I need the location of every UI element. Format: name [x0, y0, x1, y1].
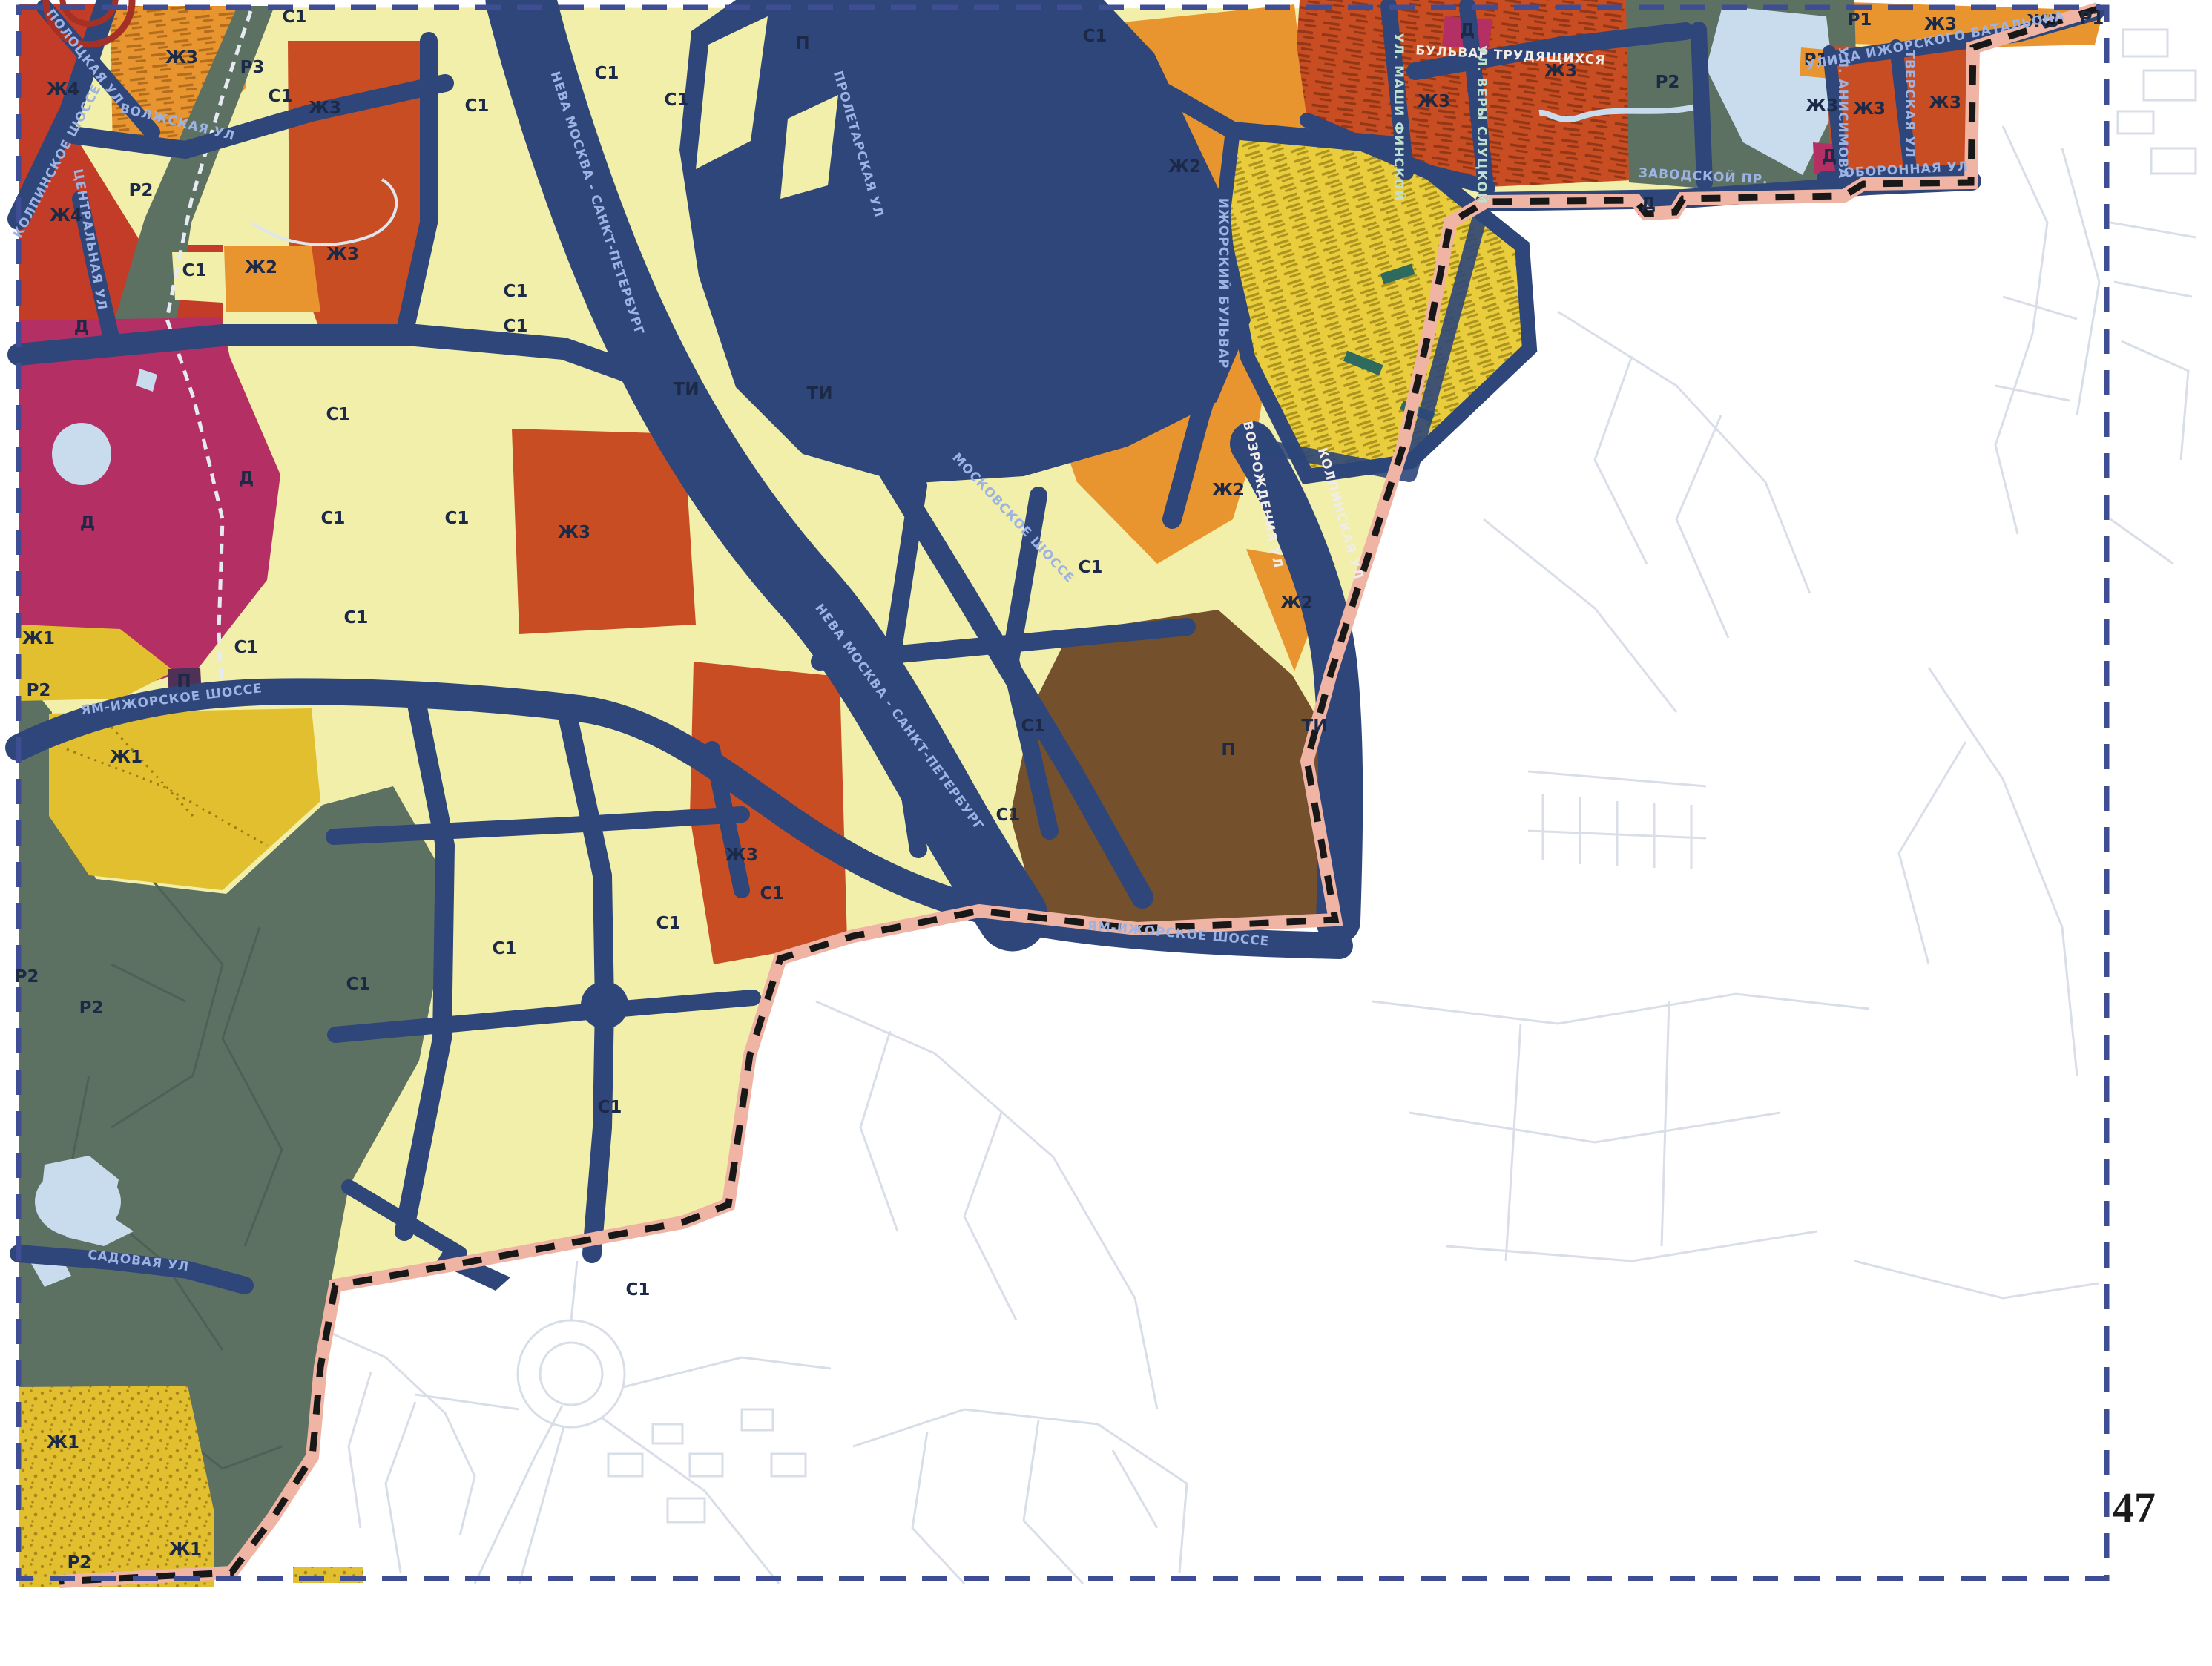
- zone-label-С1: С1: [1079, 558, 1103, 577]
- zone-label-С1: С1: [504, 317, 528, 336]
- zone-label-С1: С1: [504, 282, 528, 301]
- zone-label-С1: С1: [760, 884, 785, 903]
- zone-label-Ж2: Ж2: [1168, 157, 1201, 177]
- zone-label-Д: Д: [1822, 147, 1837, 166]
- zone-label-ТИ: ТИ: [674, 380, 700, 399]
- zone-label-С1: С1: [656, 914, 681, 933]
- zone-label-Р2: Р2: [15, 967, 39, 987]
- zone-label-П: П: [795, 34, 809, 53]
- zone-label-Ж3: Ж3: [1418, 92, 1450, 111]
- street-label: ТВЕРСКАЯ УЛ: [1902, 50, 1917, 157]
- zone-label-Р1: Р1: [2080, 9, 2104, 28]
- zone-label-С1: С1: [445, 509, 470, 528]
- zone-label-ТИ: ТИ: [1302, 717, 1328, 736]
- zone-label-ТИ: ТИ: [807, 384, 833, 404]
- zone-label-Р2: Р2: [27, 681, 51, 700]
- page-number: 47: [2113, 1484, 2156, 1532]
- zone-label-Д: Д: [1460, 21, 1475, 40]
- zone-label-Ж3: Ж3: [558, 523, 590, 542]
- zone-label-С1: С1: [996, 806, 1021, 825]
- zone-label-Ж3: Ж3: [725, 846, 758, 865]
- zoning-map-canvas[interactable]: Ж4Ж4Ж3Ж3Ж3Ж3Ж3Ж3Ж3Ж3Ж3Ж3Ж3Ж3Ж2Ж2Ж2Ж2Ж1Ж1…: [0, 0, 2212, 1666]
- zone-label-С1: С1: [465, 96, 490, 116]
- zone-label-Ж2: Ж2: [1280, 593, 1313, 613]
- zone-label-Д: Д: [239, 469, 254, 488]
- zone-label-П: П: [177, 672, 191, 691]
- zone-label-С1: С1: [595, 64, 619, 83]
- street-label: ИЖОРСКИЙ БУЛЬВАР: [1216, 198, 1232, 369]
- zone-label-Ж1: Ж1: [169, 1540, 202, 1559]
- zone-label-Р2: Р2: [68, 1553, 92, 1573]
- zone-label-Ж4: Ж4: [47, 80, 79, 99]
- zone-label-Ж1: Ж1: [47, 1433, 79, 1452]
- street-label: УЛ. ВЕРЫ СЛУЦКОЙ: [1474, 45, 1490, 204]
- zone-label-С1: С1: [182, 261, 207, 280]
- zone-label-С1: С1: [269, 87, 293, 106]
- map-sheet: Ж4Ж4Ж3Ж3Ж3Ж3Ж3Ж3Ж3Ж3Ж3Ж3Ж3Ж3Ж2Ж2Ж2Ж2Ж1Ж1…: [0, 0, 2212, 1666]
- street-label: УЛ. МАШИ ФИНСКОЙ: [1391, 33, 1407, 201]
- zone-label-Ж3: Ж3: [165, 48, 198, 68]
- zone-label-Р1: Р1: [1848, 10, 1872, 30]
- zone-label-Д: Д: [74, 317, 89, 337]
- zone-label-С1: С1: [493, 939, 517, 958]
- zone-label-Д: Д: [1641, 194, 1656, 214]
- zone-label-С1: С1: [344, 608, 369, 628]
- zone-label-Р2: Р2: [1656, 73, 1680, 92]
- zone-label-С1: С1: [346, 975, 371, 994]
- zone-label-Ж3: Ж3: [326, 245, 359, 264]
- zone-label-Р2: Р2: [129, 181, 154, 200]
- zone-label-Р3: Р3: [240, 58, 265, 77]
- zone-label-Ж3: Ж3: [1853, 99, 1886, 119]
- zone-label-Д: Д: [80, 513, 95, 533]
- zone-label-Ж2: Ж2: [1212, 481, 1245, 500]
- zone-label-С1: С1: [234, 638, 259, 657]
- zone-label-С1: С1: [283, 7, 307, 27]
- zone-label-С1: С1: [626, 1280, 651, 1300]
- zone-label-Ж1: Ж1: [110, 748, 142, 767]
- zone-label-С1: С1: [598, 1098, 622, 1117]
- zone-label-С1: С1: [665, 90, 689, 110]
- zone-label-Ж2: Ж2: [245, 258, 277, 277]
- zone-label-Ж1: Ж1: [22, 629, 55, 648]
- zone-label-П: П: [1221, 740, 1235, 760]
- zone-label-С1: С1: [321, 509, 346, 528]
- zone-label-Ж3: Ж3: [1929, 93, 1961, 113]
- zone-label-С1: С1: [326, 405, 351, 424]
- zone-label-Р2: Р2: [79, 998, 104, 1018]
- zone-label-Ж3: Ж3: [1806, 96, 1838, 116]
- street-label: УЛ. АНИСИМОВА: [1835, 47, 1850, 179]
- zone-label-С1: С1: [1083, 27, 1107, 46]
- zone-zh2: [224, 246, 320, 312]
- zone-label-Ж3: Ж3: [309, 99, 341, 118]
- zone-label-С1: С1: [1021, 717, 1046, 736]
